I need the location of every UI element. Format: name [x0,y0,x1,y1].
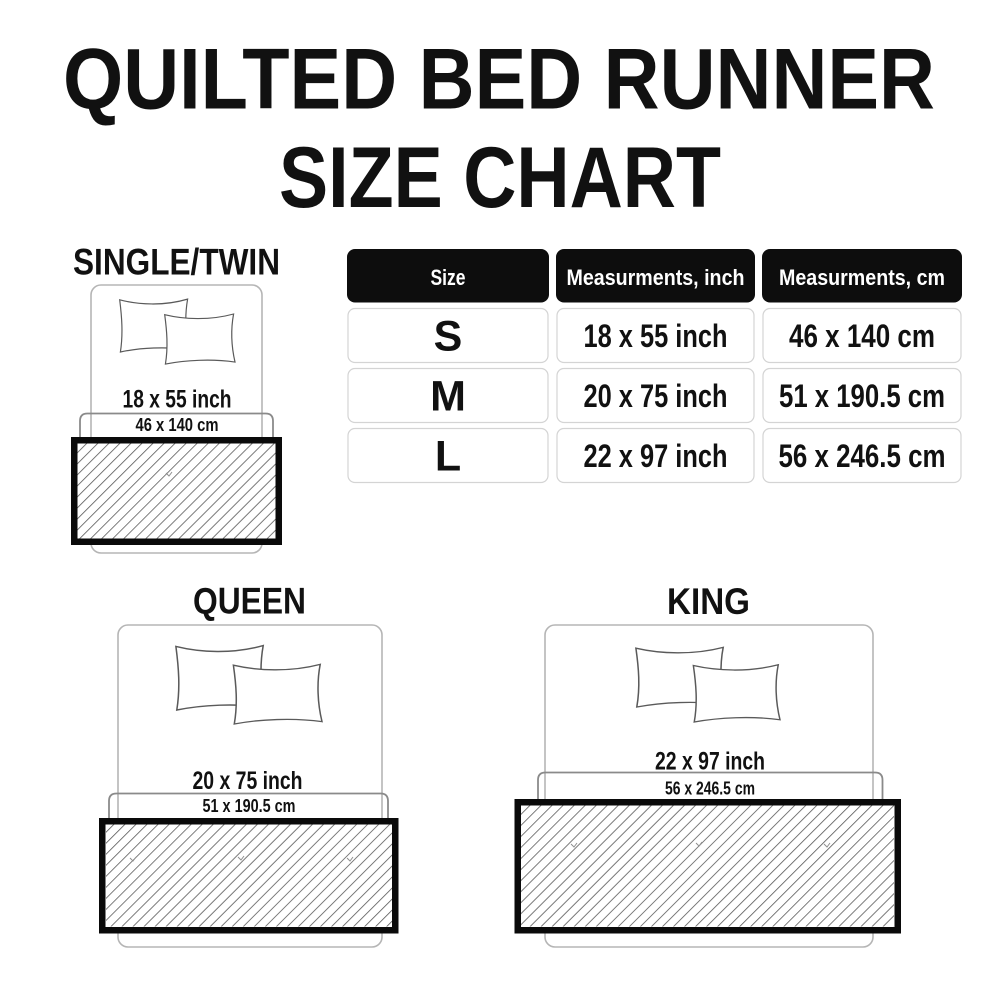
svg-text:KING: KING [667,581,750,622]
svg-text:Measurments, cm: Measurments, cm [779,265,945,290]
svg-text:20 x 75 inch: 20 x 75 inch [193,767,303,795]
svg-text:Measurments, inch: Measurments, inch [567,265,745,290]
svg-text:Size: Size [431,265,466,290]
svg-text:QUILTED BED RUNNER: QUILTED BED RUNNER [63,32,935,128]
svg-text:22 x 97 inch: 22 x 97 inch [584,438,728,474]
svg-text:46 x 140 cm: 46 x 140 cm [136,415,219,435]
svg-text:51 x 190.5 cm: 51 x 190.5 cm [203,796,296,816]
svg-text:56 x 246.5 cm: 56 x 246.5 cm [665,779,755,799]
svg-text:51 x 190.5 cm: 51 x 190.5 cm [779,378,945,414]
svg-text:S: S [434,313,463,361]
svg-text:18 x 55 inch: 18 x 55 inch [123,385,232,413]
svg-text:18 x 55 inch: 18 x 55 inch [584,318,728,354]
svg-text:56 x 246.5 cm: 56 x 246.5 cm [779,438,946,474]
svg-text:M: M [430,373,466,421]
svg-text:20 x 75 inch: 20 x 75 inch [584,378,728,414]
svg-text:QUEEN: QUEEN [193,581,306,622]
svg-text:SINGLE/TWIN: SINGLE/TWIN [73,242,280,283]
svg-text:SIZE CHART: SIZE CHART [279,130,721,226]
svg-text:22 x 97 inch: 22 x 97 inch [655,748,765,776]
svg-text:L: L [435,433,461,481]
svg-text:46 x 140 cm: 46 x 140 cm [789,318,935,354]
